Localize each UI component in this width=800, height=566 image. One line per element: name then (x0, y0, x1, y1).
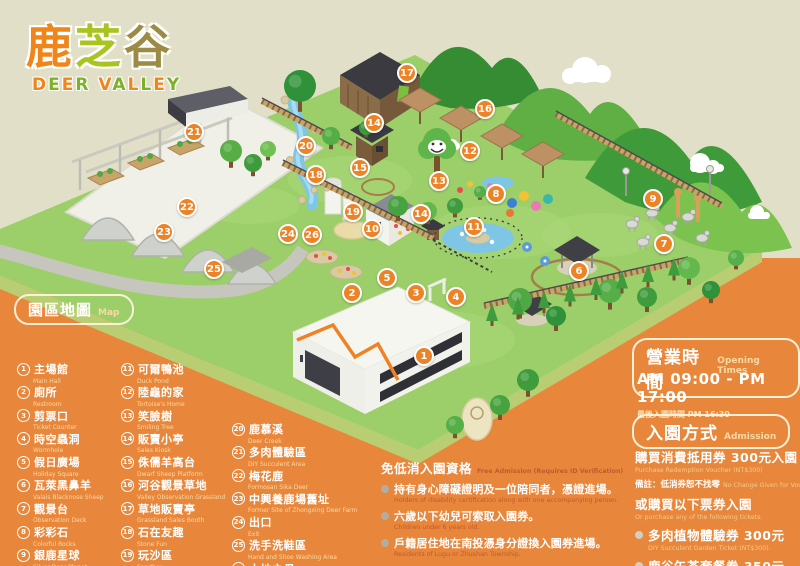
legend-item-name: 石在友趣 (138, 524, 184, 540)
legend-item-17: 17草地販賣亭Grassland Sales Booth (121, 501, 225, 524)
legend-item-number: 13 (121, 409, 134, 422)
legend-item-number: 7 (17, 502, 30, 515)
legend-item-number: 26 (232, 562, 245, 566)
legend-item-3: 3剪票口Ticket Counter (17, 408, 104, 431)
legend-item-name: 河谷觀景草地 (138, 477, 207, 493)
legend-item-number: 22 (232, 469, 245, 482)
legend-item-2: 2廁所Restroom (17, 384, 104, 407)
legend-item-20: 20鹿慕溪Deer Creek (232, 421, 357, 444)
map-marker-24: 24 (278, 224, 298, 244)
rule-text-en: Holders of disability certification alon… (394, 497, 631, 504)
legend-item-name: 出口 (249, 514, 272, 530)
logo-chinese: 鹿芝谷 (26, 22, 226, 73)
legend-item-number: 6 (17, 479, 30, 492)
map-marker-26: 26 (302, 225, 322, 245)
map-marker-9: 9 (643, 189, 663, 209)
legend-item-number: 24 (232, 516, 245, 529)
legend-item-name: 觀景台 (34, 501, 69, 517)
legend-item-number: 20 (232, 423, 245, 436)
ticket-name: 多肉植物體驗券 300元 (648, 525, 784, 544)
map-marker-7: 7 (654, 234, 674, 254)
map-marker-25: 25 (204, 259, 224, 279)
legend-item-number: 21 (232, 446, 245, 459)
legend-item-14: 14販賣小亭Sales Kiosk (121, 431, 225, 454)
logo-char: 鹿 (26, 20, 75, 74)
legend-title-en: Map (98, 308, 119, 318)
legend-column: 1主場館Main Hall2廁所Restroom3剪票口Ticket Count… (17, 361, 104, 566)
map-marker-2: 2 (342, 283, 362, 303)
legend-item-name: 剪票口 (34, 408, 69, 424)
logo-english: DEER VALLEY (26, 75, 226, 95)
legend-item-name: 洗手洗鞋區 (249, 537, 307, 553)
legend-item-number: 8 (17, 526, 30, 539)
ticket-item: 鹿谷午茶套餐券 350元Local Tea and Snack Ticket (… (635, 556, 795, 566)
voucher-note: 備註：低消券恕不找零 No Change Given for Voucher (635, 478, 795, 490)
legend-item-9: 9銀鹿星球Silver Deer Planet (17, 547, 104, 566)
bullet-icon (381, 539, 389, 547)
legend-item-number: 17 (121, 502, 134, 515)
rule-text: 戶籍居住地在南投憑身分證換入園券進場。 (394, 535, 607, 551)
legend-item-number: 15 (121, 456, 134, 469)
map-marker-10: 10 (362, 219, 382, 239)
legend-item-11: 11可爾鴨池Duck Pond (121, 361, 225, 384)
legend-item-name: 可爾鴨池 (138, 361, 184, 377)
map-marker-15: 15 (350, 158, 370, 178)
legend-item-number: 12 (121, 386, 134, 399)
legend-item-name: 販賣小亭 (138, 431, 184, 447)
map-marker-14: 14 (364, 113, 384, 133)
bullet-icon (381, 512, 389, 520)
admission-title-en: Admission (724, 432, 776, 442)
legend-item-number: 1 (17, 363, 30, 376)
tickets-line: 或購買以下票券入園 (635, 494, 795, 513)
legend-item-name: 時空蟲洞 (34, 431, 80, 447)
deer-valley-poster: 鹿芝谷 DEER VALLEY 123456789101112131414151… (0, 0, 800, 566)
rule-text-en: Children under 6 years old. (394, 524, 631, 531)
legend-item-number: 2 (17, 386, 30, 399)
opening-hours-time: AM 09:00 - PM 17:00 (637, 370, 800, 406)
map-marker-22: 22 (177, 197, 197, 217)
bullet-icon (381, 485, 389, 493)
legend-item-name: 瓦萊黑鼻羊 (34, 477, 92, 493)
legend-item-name: 梅花鹿 (249, 468, 284, 484)
map-marker-18: 18 (306, 165, 326, 185)
map-marker-5: 5 (377, 268, 397, 288)
legend-item-16: 16河谷觀景草地Valley Observation Grassland (121, 477, 225, 500)
opening-hours: AM 09:00 - PM 17:00 最後入園時間 PM 16:30 (637, 370, 800, 420)
legend-item-number: 18 (121, 526, 134, 539)
map-marker-23: 23 (154, 222, 174, 242)
legend-item-15: 15侏儒羊高台Dwarf Sheep Platform (121, 454, 225, 477)
logo-char: 芝 (75, 20, 124, 74)
legend-columns: 1主場館Main Hall2廁所Restroom3剪票口Ticket Count… (14, 331, 344, 566)
legend-item-name: 假日廣場 (34, 454, 80, 470)
legend-item-number: 14 (121, 432, 134, 445)
legend-item-name: 中興養鹿場舊址 (249, 491, 330, 507)
free-admission-rule: 六歲以下幼兒可索取入園券。Children under 6 years old. (381, 508, 631, 531)
legend-column: 20鹿慕溪Deer Creek21多肉體驗區DIY Succulent Area… (232, 421, 357, 566)
legend-item-22: 22梅花鹿Formosan Sika Deer (232, 468, 357, 491)
legend-item-name: 鹿慕溪 (249, 421, 284, 437)
legend-item-name: 玩沙區 (138, 547, 173, 563)
legend-item-number: 4 (17, 432, 30, 445)
legend-item-5: 5假日廣場Holiday Square (17, 454, 104, 477)
free-admission-rule: 持有身心障礙證明及一位陪同者，憑證進場。Holders of disabilit… (381, 481, 631, 504)
free-admission-rules: 持有身心障礙證明及一位陪同者，憑證進場。Holders of disabilit… (381, 481, 631, 558)
legend-item-13: 13笑臉樹Smiling Tree (121, 408, 225, 431)
legend-item-number: 5 (17, 456, 30, 469)
bullet-icon (635, 562, 643, 566)
ticket-item: 多肉植物體驗券 300元DIY Succulent Garden Ticket … (635, 525, 795, 552)
legend-item-6: 6瓦萊黑鼻羊Valais Blacknose Sheep (17, 477, 104, 500)
legend-item-name: 多肉體驗區 (249, 444, 307, 460)
legend-item-name: 銀鹿星球 (34, 547, 80, 563)
legend-item-4: 4時空蟲洞Wormhole (17, 431, 104, 454)
legend-item-23: 23中興養鹿場舊址Former Site of Zhongxing Deer F… (232, 491, 357, 514)
voucher-line-en: Purchase Redemption Voucher (NT$300) (635, 467, 795, 474)
legend-item-18: 18石在友趣Stone Fun (121, 524, 225, 547)
legend-item-number: 11 (121, 363, 134, 376)
legend-item-1: 1主場館Main Hall (17, 361, 104, 384)
legend-item-8: 8彩彩石Colorful Rocks (17, 524, 104, 547)
ticket-list: 多肉植物體驗券 300元DIY Succulent Garden Ticket … (635, 525, 795, 566)
legend-item-21: 21多肉體驗區DIY Succulent Area (232, 444, 357, 467)
map-marker-21: 21 (184, 122, 204, 142)
rule-text: 持有身心障礙證明及一位陪同者，憑證進場。 (394, 481, 618, 497)
map-marker-17: 17 (397, 63, 417, 83)
legend-item-number: 3 (17, 409, 30, 422)
admission-title: 入園方式 (646, 419, 718, 444)
map-marker-16: 16 (475, 99, 495, 119)
legend-item-name: 廁所 (34, 384, 57, 400)
free-admission-heading: 免低消入園資格 Free Admission (Requires ID Veri… (381, 458, 631, 477)
legend-item-name: 笑臉樹 (138, 408, 173, 424)
map-marker-8: 8 (486, 184, 506, 204)
legend-item-26: 26大地之母Mother Earth (232, 561, 357, 566)
rule-text: 六歲以下幼兒可索取入園券。 (394, 508, 540, 524)
legend-item-name: 草地販賣亭 (138, 501, 196, 517)
admission-box: 入園方式 Admission (632, 414, 790, 449)
map-marker-19: 19 (343, 202, 363, 222)
tickets-line-en: Or purchase any of the following tickets… (635, 514, 795, 521)
bullet-icon (635, 531, 643, 539)
legend-item-number: 19 (121, 549, 134, 562)
free-admission-panel: 免低消入園資格 Free Admission (Requires ID Veri… (381, 458, 631, 558)
map-marker-14: 14 (411, 204, 431, 224)
ticket-name-en: DIY Succulent Garden Ticket (NT$300). (648, 545, 795, 552)
map-marker-20: 20 (296, 136, 316, 156)
map-marker-12: 12 (460, 141, 480, 161)
legend-title-box: 園區地圖 Map (14, 294, 134, 325)
rule-text-en: Residents of Lugu or Zhushan Township. (394, 551, 631, 558)
legend-item-7: 7觀景台Observation Deck (17, 501, 104, 524)
map-marker-13: 13 (429, 171, 449, 191)
legend-title: 園區地圖 (28, 299, 92, 320)
legend-item-number: 16 (121, 479, 134, 492)
map-marker-4: 4 (446, 287, 466, 307)
legend-item-number: 23 (232, 492, 245, 505)
legend-item-name: 侏儒羊高台 (138, 454, 196, 470)
map-marker-6: 6 (569, 261, 589, 281)
legend-item-name: 主場館 (34, 361, 69, 377)
logo: 鹿芝谷 DEER VALLEY (26, 22, 226, 95)
legend-item-name: 彩彩石 (34, 524, 69, 540)
map-marker-11: 11 (464, 217, 484, 237)
wormhole-egg (462, 398, 492, 440)
map-marker-1: 1 (414, 346, 434, 366)
legend-item-name: 陸龜的家 (138, 384, 184, 400)
legend-item-24: 24出口Exit (232, 514, 357, 537)
legend-item-12: 12陸龜的家Tortoise's Home (121, 384, 225, 407)
logo-char: 谷 (124, 20, 173, 74)
free-admission-rule: 戶籍居住地在南投憑身分證換入園券進場。Residents of Lugu or … (381, 535, 631, 558)
voucher-line: 購買消費抵用券 300元入園 (635, 447, 795, 466)
admission-details: 購買消費抵用券 300元入園 Purchase Redemption Vouch… (635, 447, 795, 566)
legend-column: 11可爾鴨池Duck Pond12陸龜的家Tortoise's Home13笑臉… (121, 361, 225, 566)
legend-panel: 園區地圖 Map 1主場館Main Hall2廁所Restroom3剪票口Tic… (14, 294, 344, 566)
legend-item-number: 25 (232, 539, 245, 552)
ticket-name: 鹿谷午茶套餐券 350元 (648, 556, 784, 566)
legend-item-19: 19玩沙區Sandbox (121, 547, 225, 566)
legend-item-name: 大地之母 (249, 561, 295, 566)
legend-item-25: 25洗手洗鞋區Hand and Shoe Washing Area (232, 537, 357, 560)
map-marker-3: 3 (406, 283, 426, 303)
legend-item-number: 9 (17, 549, 30, 562)
